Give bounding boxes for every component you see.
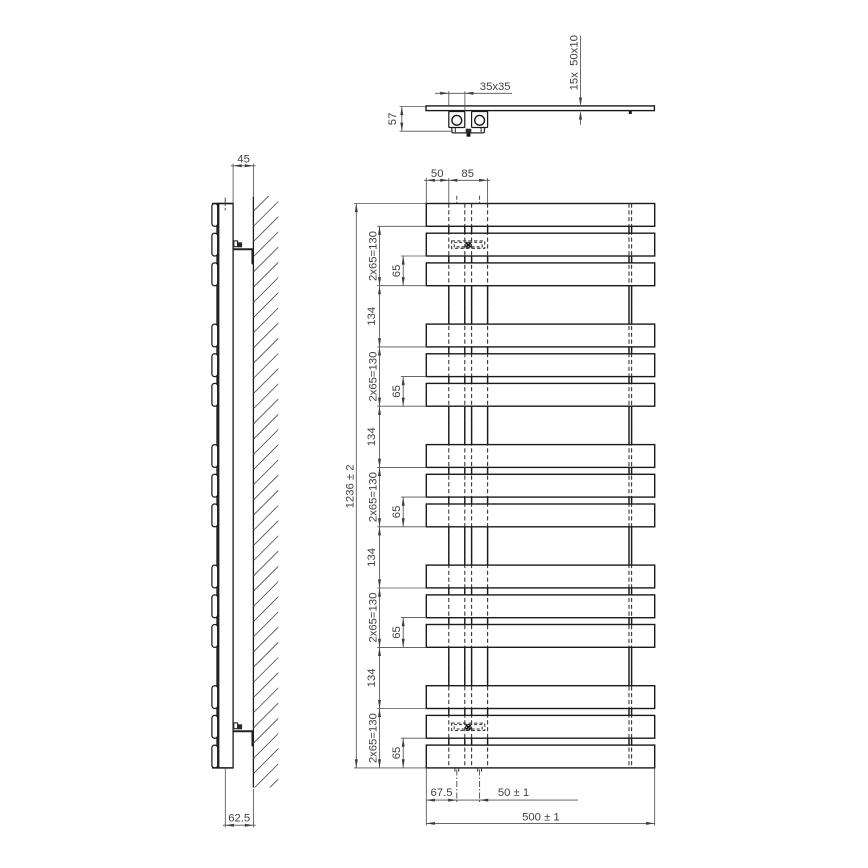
svg-text:65: 65 [391,265,403,278]
svg-text:1236 ± 2: 1236 ± 2 [344,464,356,508]
svg-text:50: 50 [431,168,444,180]
svg-text:57: 57 [387,113,399,126]
svg-text:2x65=130: 2x65=130 [367,593,379,643]
svg-text:2x65=130: 2x65=130 [367,713,379,763]
svg-text:50x10: 50x10 [569,35,581,66]
svg-text:65: 65 [391,506,403,519]
svg-text:67.5: 67.5 [431,787,453,799]
svg-text:2x65=130: 2x65=130 [367,472,379,522]
svg-text:85: 85 [461,168,474,180]
svg-text:45: 45 [237,154,250,166]
svg-text:134: 134 [366,427,378,446]
svg-text:62.5: 62.5 [228,813,250,825]
svg-text:65: 65 [391,747,403,760]
svg-text:65: 65 [391,385,403,398]
svg-text:134: 134 [366,548,378,567]
svg-text:134: 134 [366,668,378,687]
svg-text:35x35: 35x35 [480,81,511,93]
svg-text:134: 134 [366,307,378,326]
svg-text:2x65=130: 2x65=130 [367,352,379,402]
svg-text:15x: 15x [569,72,581,91]
svg-text:2x65=130: 2x65=130 [367,231,379,281]
svg-text:500 ± 1: 500 ± 1 [522,811,560,823]
svg-text:65: 65 [391,626,403,639]
svg-text:50 ± 1: 50 ± 1 [498,787,529,799]
